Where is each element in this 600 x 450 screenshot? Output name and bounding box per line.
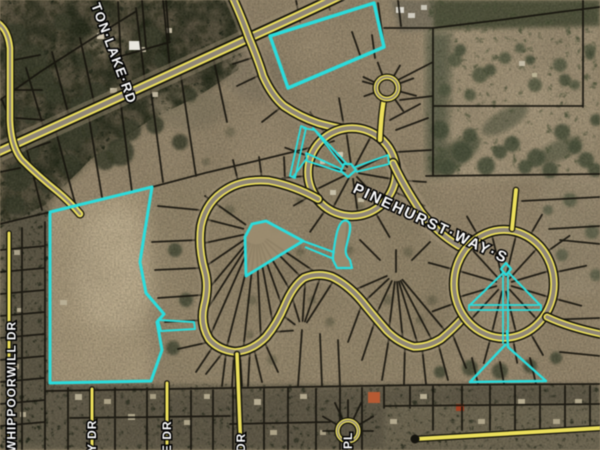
svg-text:PL: PL (341, 432, 355, 449)
svg-text:E DR: E DR (160, 420, 174, 450)
svg-text:WHIPPOORWILL DR: WHIPPOORWILL DR (5, 321, 19, 450)
svg-text:DR: DR (234, 433, 248, 450)
svg-text:Y DR: Y DR (85, 420, 99, 450)
